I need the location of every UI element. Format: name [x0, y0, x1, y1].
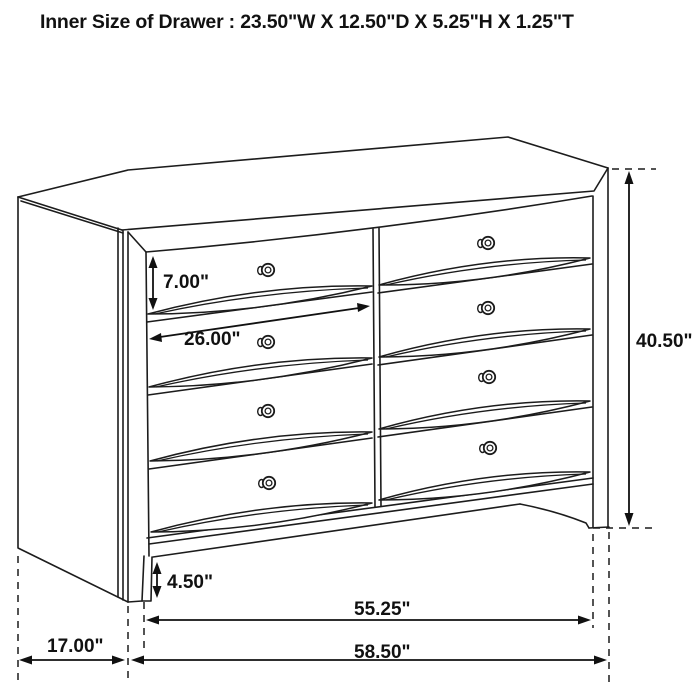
- dimension-label-case-width: 55.25": [354, 599, 411, 620]
- dimension-overall-height: 40.50": [625, 171, 693, 526]
- drawer-knob-icon: [478, 302, 494, 314]
- drawer-front-lens: [379, 258, 590, 285]
- drawer-knob-icon: [259, 477, 275, 489]
- dimension-sheet: Inner Size of Drawer : 23.50"W X 12.50"D…: [0, 0, 700, 700]
- dimension-label-overall-width: 58.50": [354, 642, 411, 663]
- drawer-knob-icon: [480, 442, 496, 454]
- drawer-front-lens: [379, 401, 590, 429]
- drawer-knob-icon: [258, 405, 274, 417]
- dimension-case-width: 55.25": [146, 599, 591, 625]
- drawer-front-lens: [379, 329, 590, 357]
- dimension-overall-width: 58.50": [131, 642, 607, 665]
- dimension-label-overall-height: 40.50": [636, 331, 693, 352]
- dimension-label-depth: 17.00": [47, 636, 104, 657]
- drawer-knob-icon: [258, 336, 274, 348]
- dimension-label-drawer-width: 26.00": [184, 329, 241, 350]
- dimension-depth: 17.00": [19, 636, 125, 665]
- drawer-knob-icon: [479, 371, 495, 383]
- drawer-front-lens: [151, 503, 372, 532]
- drawer-knob-icon: [258, 264, 274, 276]
- drawer-front-lens: [379, 472, 590, 500]
- drawer-knob-icon: [478, 237, 494, 249]
- dimension-annotations: 7.00" 26.00" 40.50" 4.50": [18, 169, 693, 684]
- dimension-label-base-height: 4.50": [167, 572, 213, 593]
- dimension-base-height: 4.50": [153, 562, 214, 598]
- drawer-front-lens: [150, 432, 372, 461]
- dimension-label-drawer-front-height: 7.00": [163, 272, 209, 293]
- dresser-diagram: 7.00" 26.00" 40.50" 4.50": [0, 0, 700, 700]
- drawer-front-lens: [149, 358, 372, 387]
